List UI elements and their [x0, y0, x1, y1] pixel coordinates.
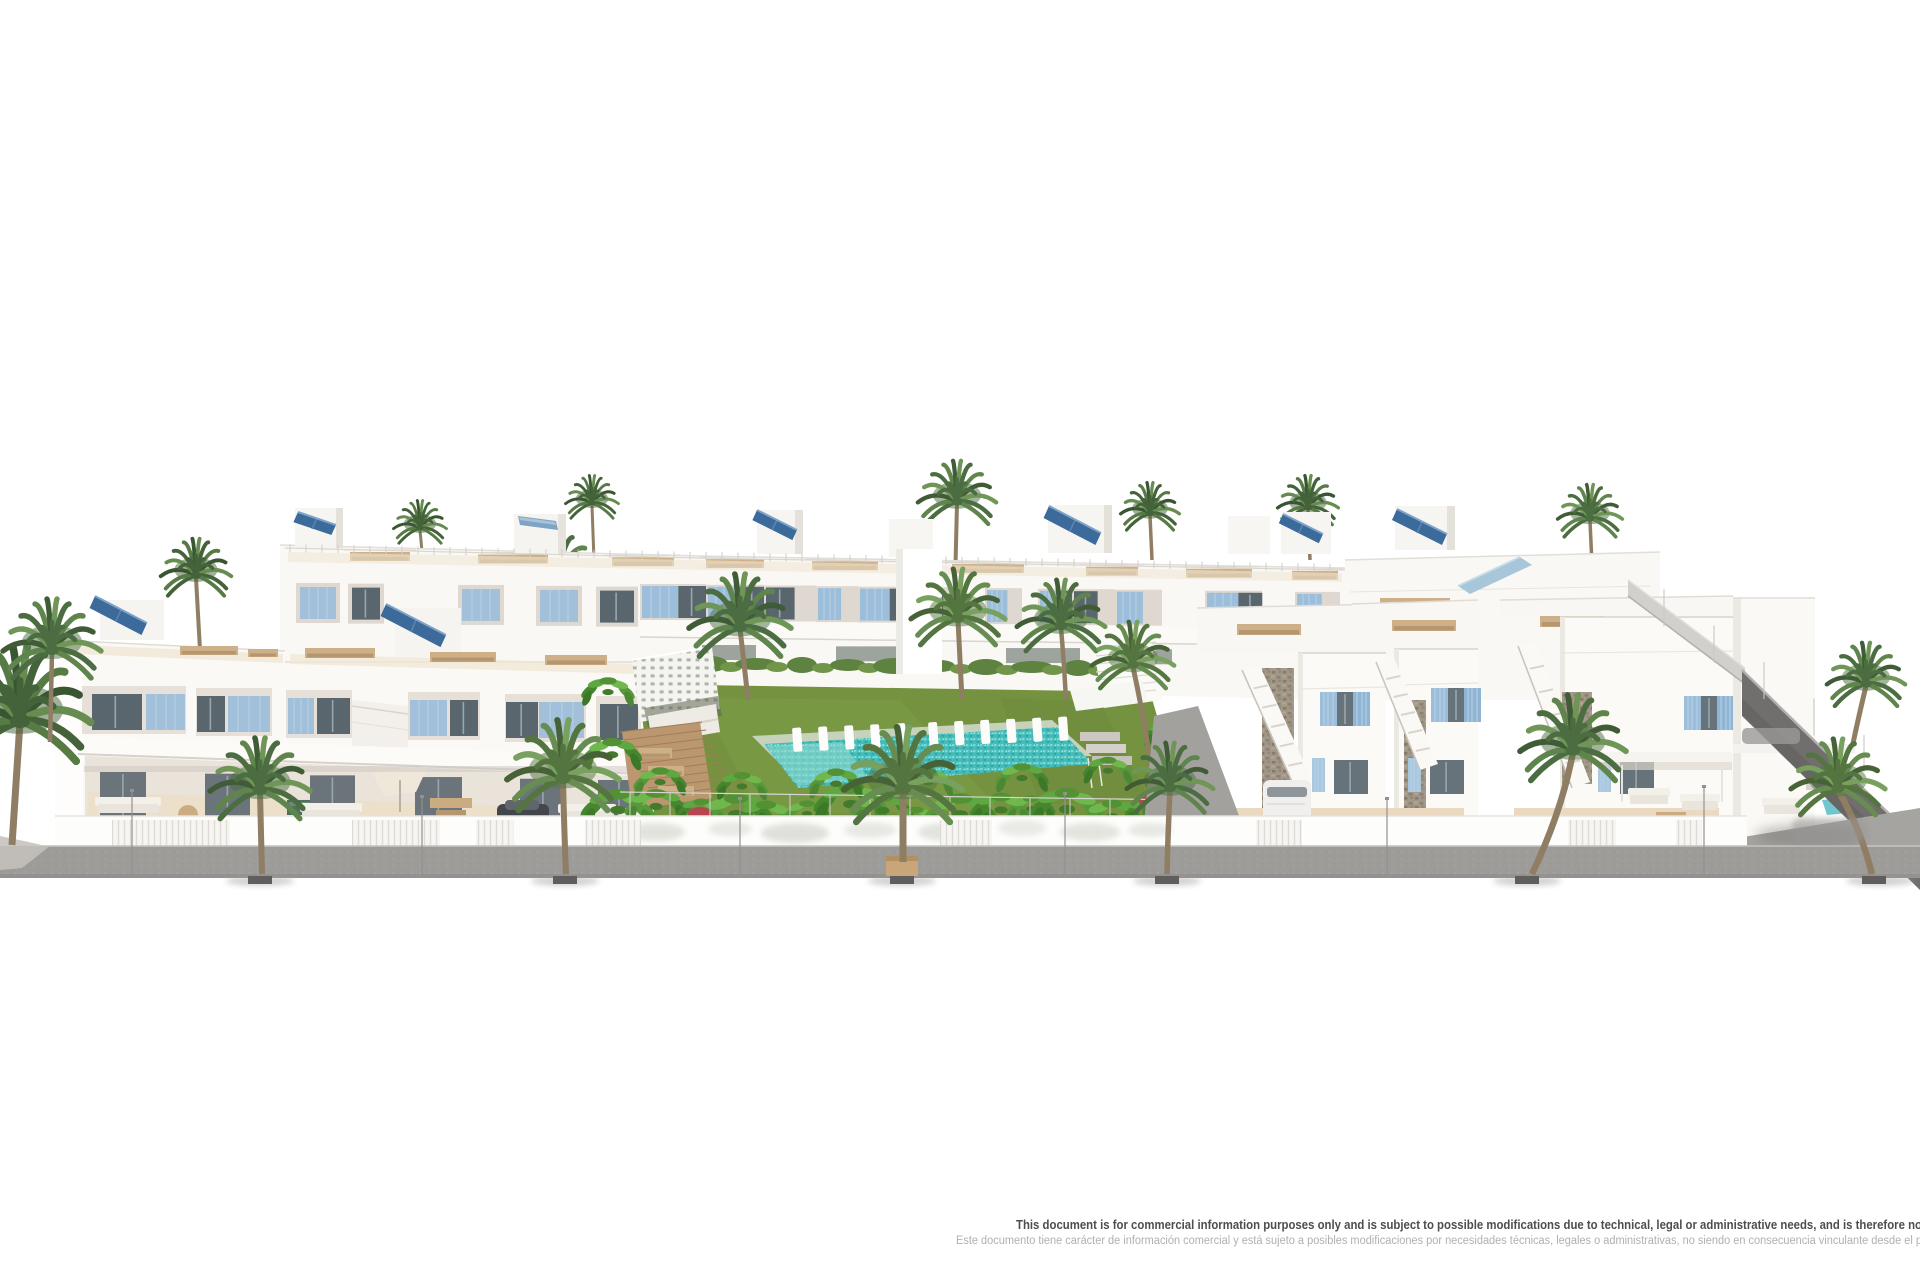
svg-text:Este documento tiene carácter: Este documento tiene carácter de informa… [956, 1235, 1920, 1247]
svg-text:This document is for commercia: This document is for commercial informat… [1016, 1217, 1920, 1232]
